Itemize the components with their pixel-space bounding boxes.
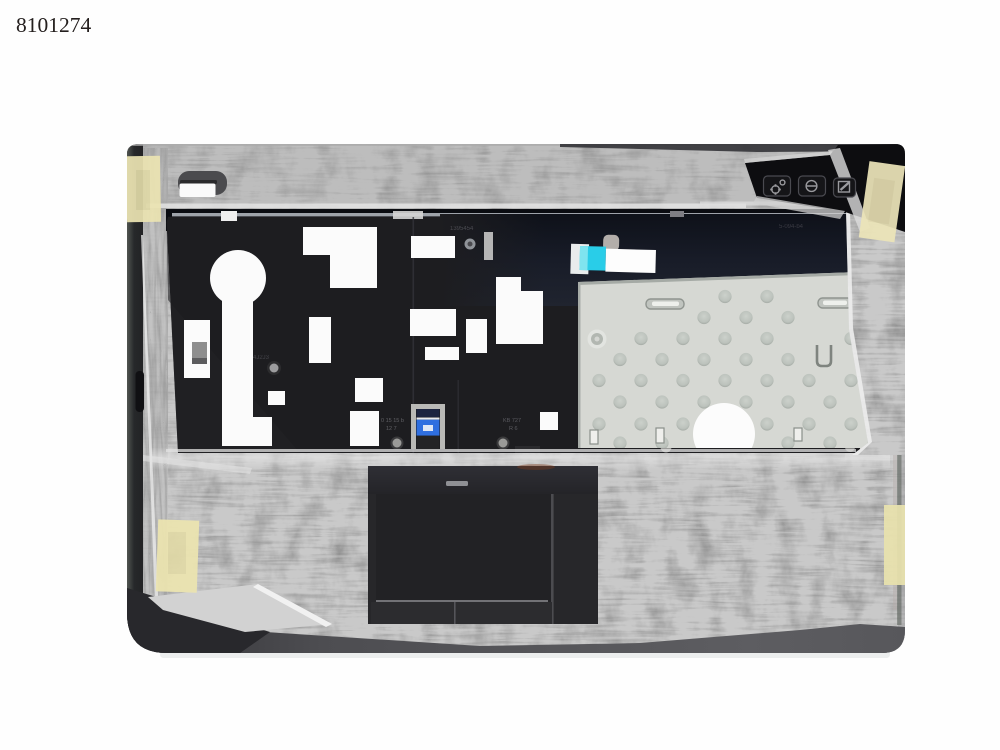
svg-text:1395454: 1395454 (450, 226, 474, 232)
svg-text:5-094-b4: 5-094-b4 (779, 224, 804, 230)
svg-text:KB 727: KB 727 (503, 418, 521, 424)
svg-text:8101274: 8101274 (16, 13, 92, 37)
svg-text:0 15 15 b: 0 15 15 b (381, 418, 404, 424)
svg-text:R 6: R 6 (509, 426, 518, 432)
svg-text:4J2J3: 4J2J3 (253, 355, 270, 361)
svg-text:12 7: 12 7 (386, 426, 397, 432)
